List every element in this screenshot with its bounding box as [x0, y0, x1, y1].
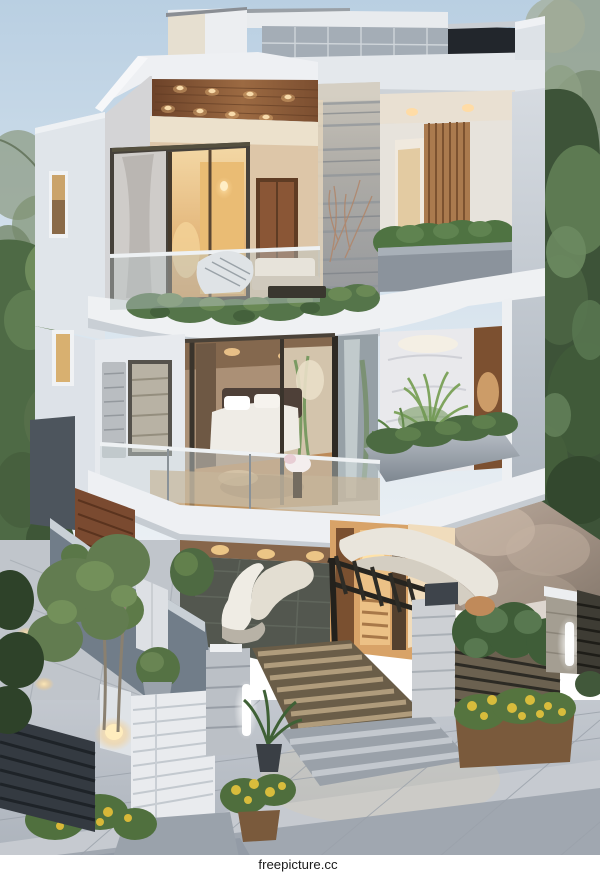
- svg-text:freepicture.cc: freepicture.cc: [258, 857, 338, 872]
